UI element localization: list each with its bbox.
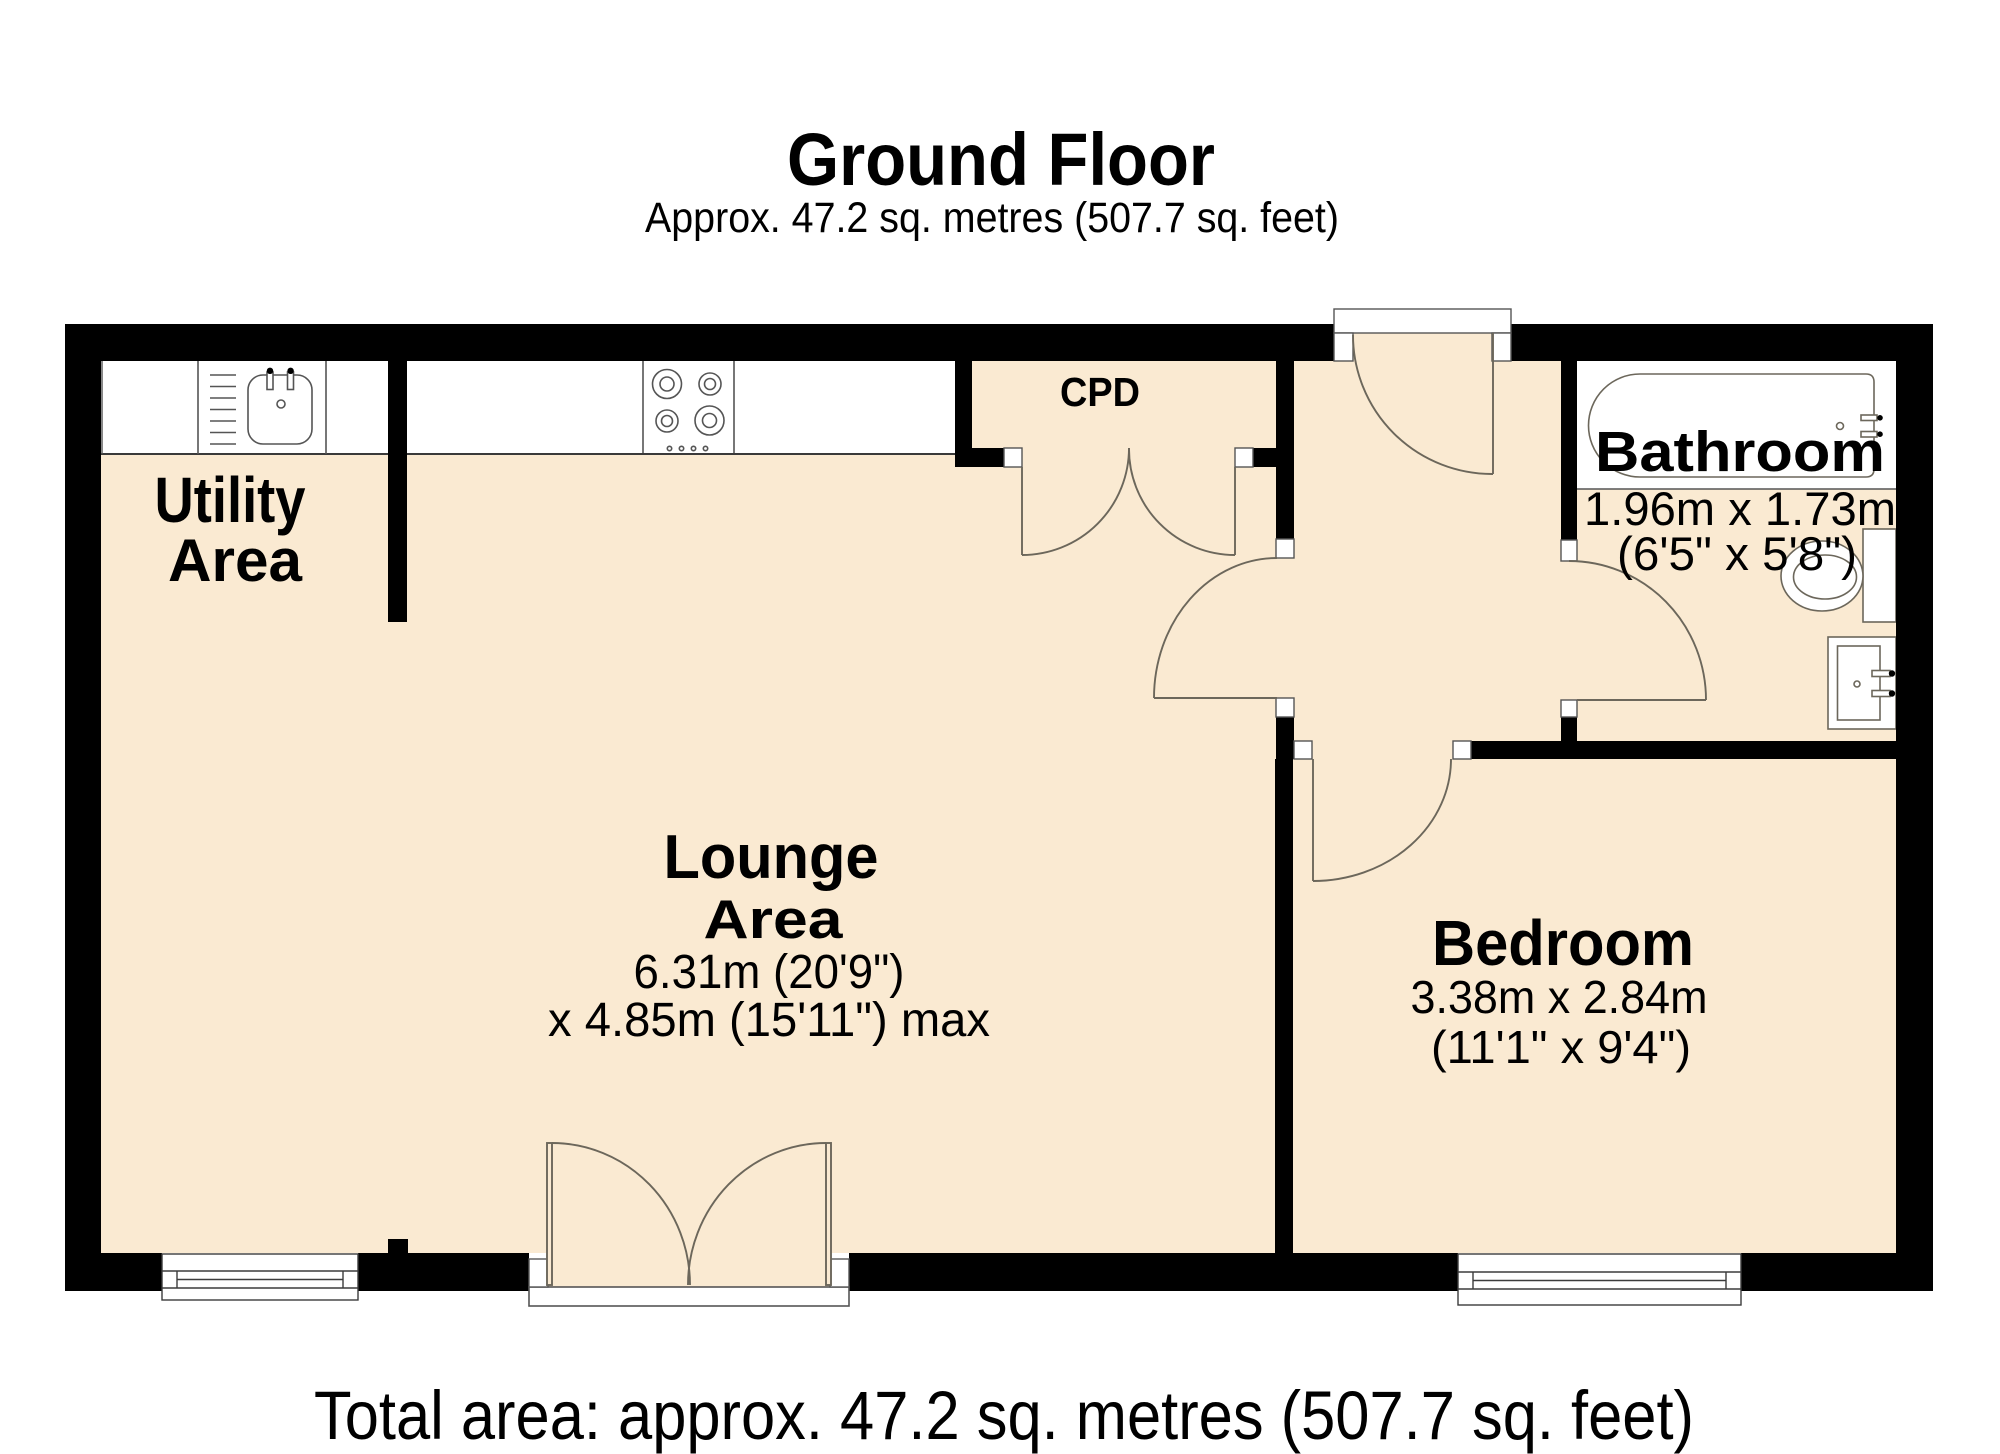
svg-text:Lounge: Lounge <box>664 823 879 892</box>
svg-text:Bathroom: Bathroom <box>1595 420 1885 484</box>
svg-text:x 4.85m (15'11") max: x 4.85m (15'11") max <box>548 994 990 1047</box>
svg-text:Approx. 47.2 sq. metres (507.7: Approx. 47.2 sq. metres (507.7 sq. feet) <box>645 194 1339 242</box>
svg-text:Ground Floor: Ground Floor <box>787 118 1215 201</box>
svg-text:Area: Area <box>168 527 303 594</box>
svg-text:CPD: CPD <box>1060 369 1140 415</box>
svg-text:3.38m x 2.84m: 3.38m x 2.84m <box>1411 971 1708 1023</box>
svg-text:Area: Area <box>704 888 843 950</box>
svg-text:(6'5" x 5'8"): (6'5" x 5'8") <box>1617 527 1857 580</box>
svg-text:Total area: approx. 47.2 sq. m: Total area: approx. 47.2 sq. metres (507… <box>314 1377 1694 1454</box>
svg-text:6.31m (20'9"): 6.31m (20'9") <box>634 946 905 999</box>
svg-text:Utility: Utility <box>155 464 306 536</box>
svg-text:(11'1" x 9'4"): (11'1" x 9'4") <box>1431 1021 1691 1073</box>
svg-text:Bedroom: Bedroom <box>1432 907 1694 979</box>
